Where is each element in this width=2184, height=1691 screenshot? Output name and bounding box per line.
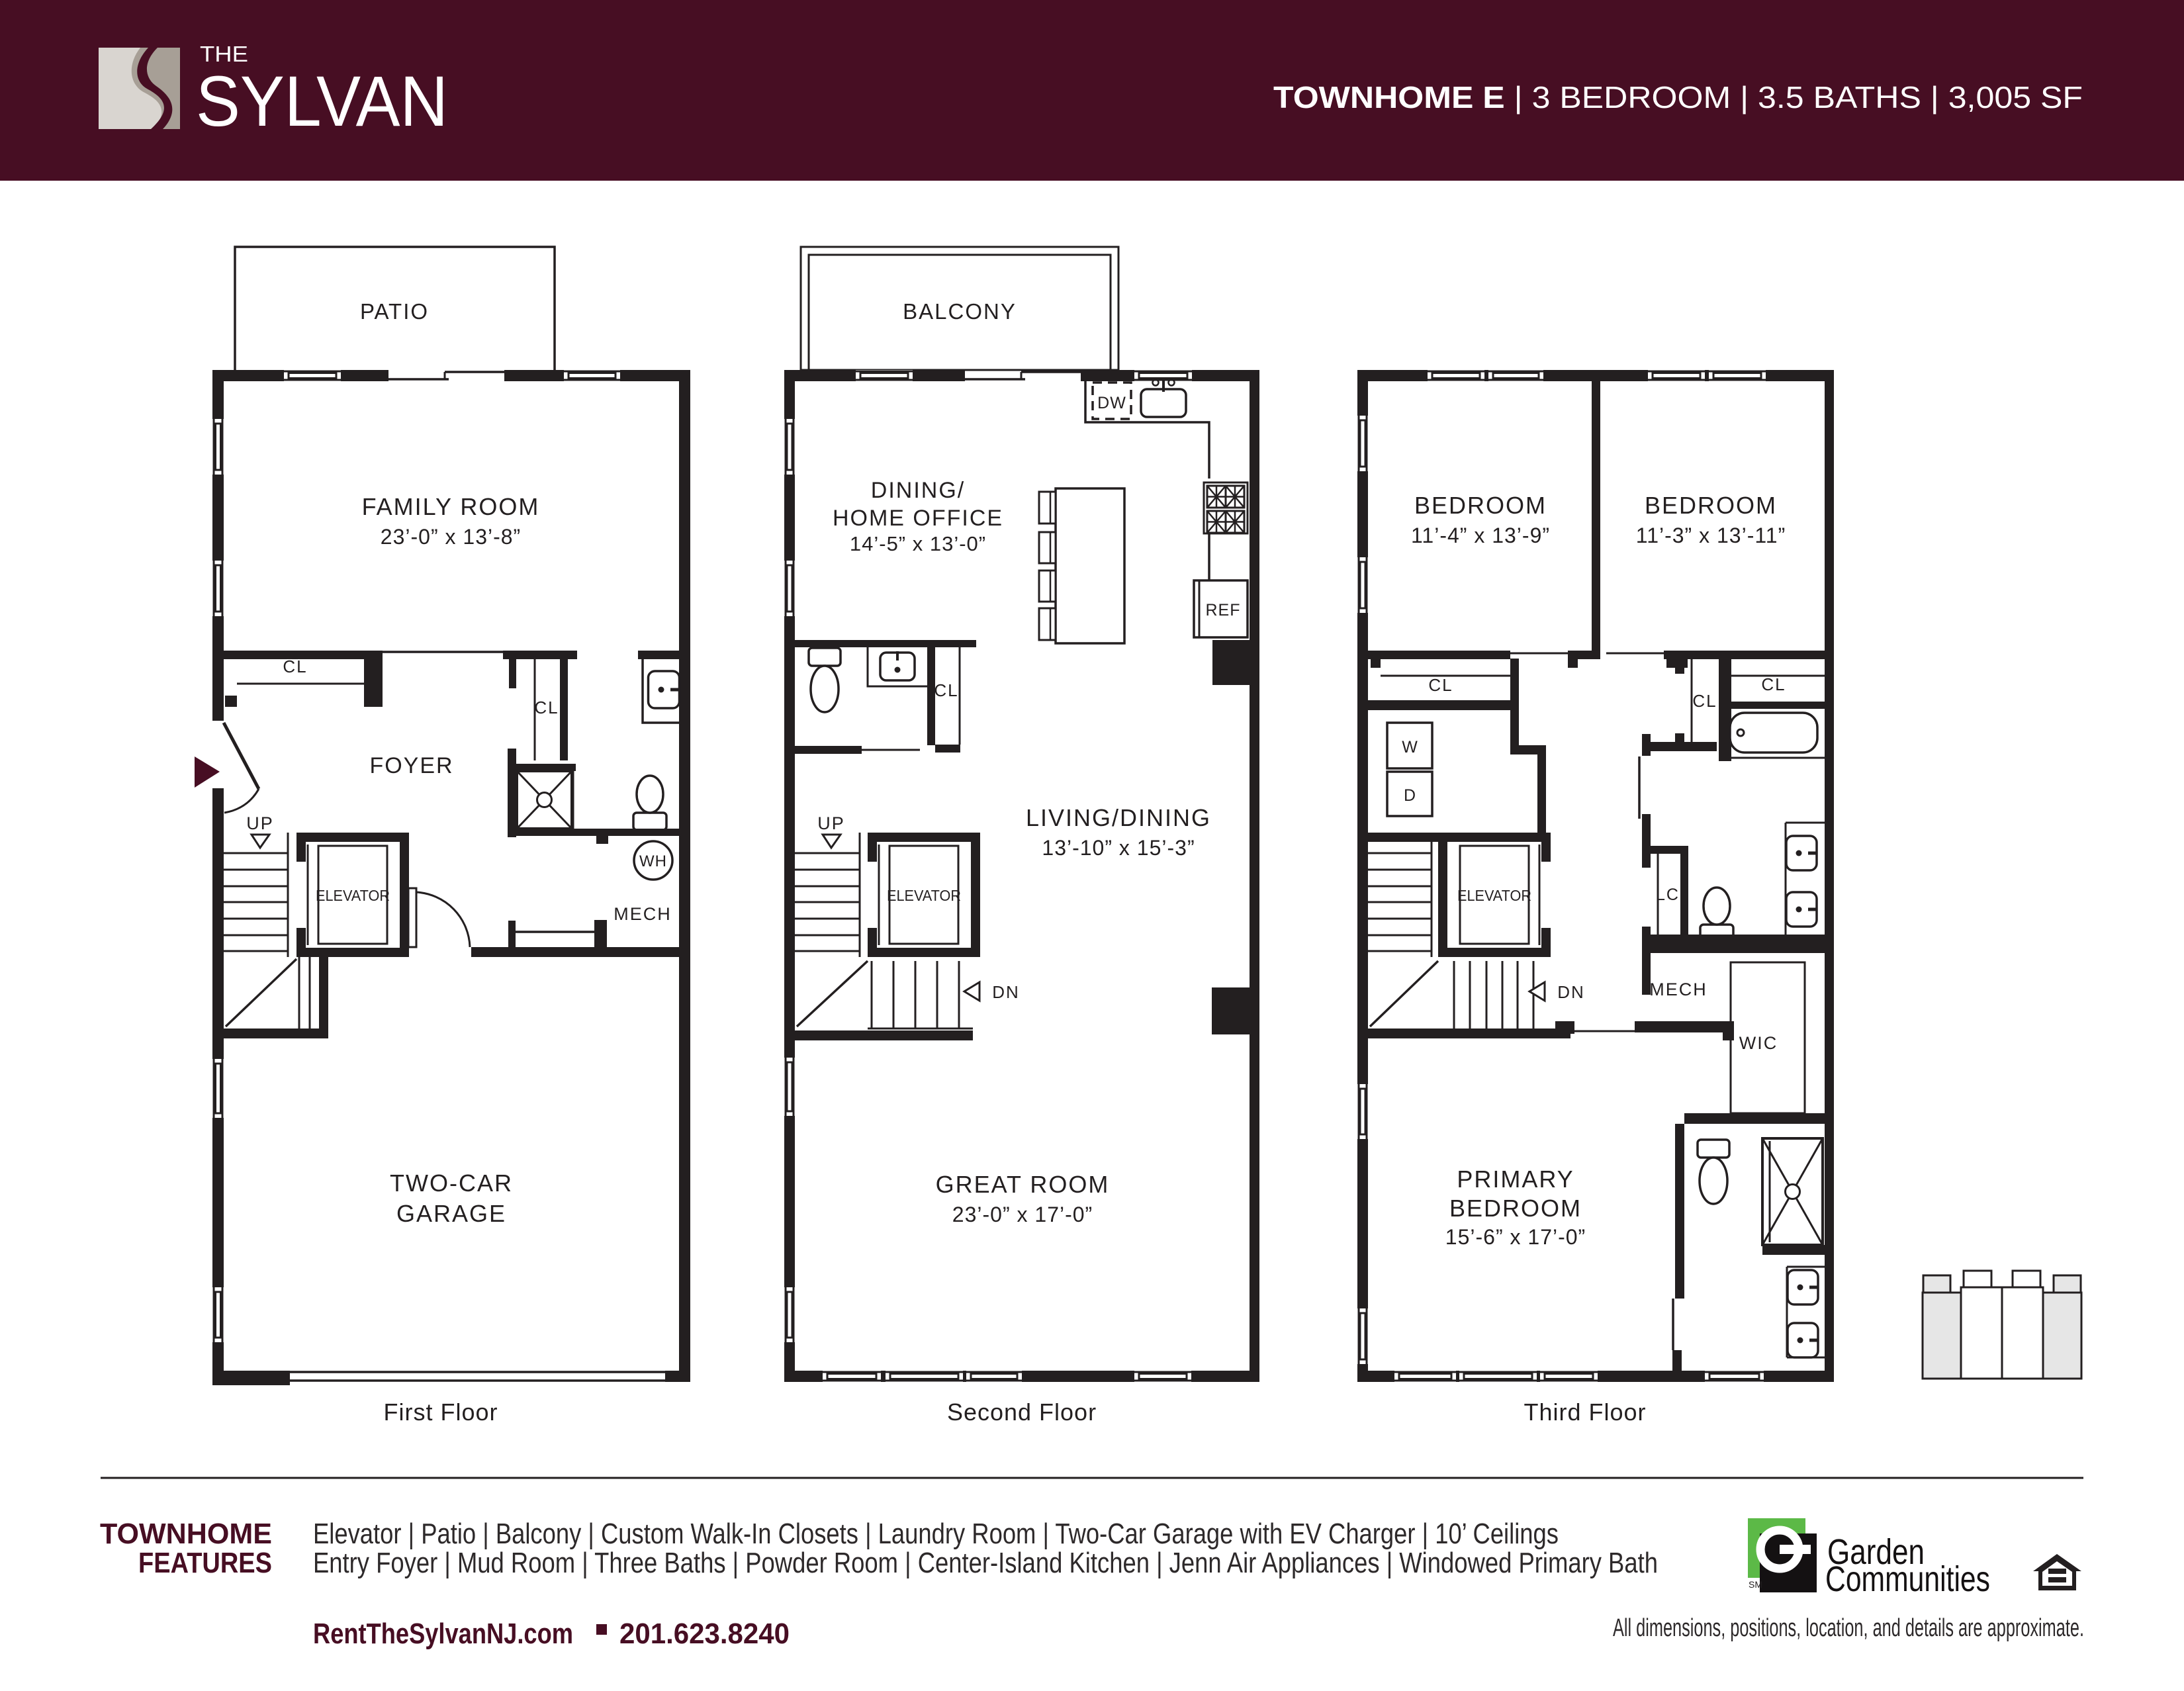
svg-text:23’-0” x 17’-0”: 23’-0” x 17’-0” (952, 1203, 1093, 1226)
svg-text:11’-3” x 13’-11”: 11’-3” x 13’-11” (1636, 524, 1786, 547)
svg-text:WH: WH (639, 852, 667, 870)
svg-text:BEDROOM: BEDROOM (1645, 492, 1777, 519)
svg-text:ELEVATOR: ELEVATOR (887, 887, 961, 904)
svg-text:TOWNHOME E | 3 BEDROOM | 3.5 B: TOWNHOME E | 3 BEDROOM | 3.5 BATHS | 3,0… (1273, 80, 2083, 114)
svg-text:TWO-CAR: TWO-CAR (390, 1169, 513, 1197)
svg-text:CL: CL (1761, 674, 1786, 694)
svg-text:WIC: WIC (1739, 1033, 1778, 1053)
svg-text:23’-0” x 13’-8”: 23’-0” x 13’-8” (381, 525, 521, 549)
svg-text:PRIMARY: PRIMARY (1457, 1165, 1574, 1193)
svg-text:CL: CL (283, 657, 307, 676)
svg-text:15’-6” x 17’-0”: 15’-6” x 17’-0” (1445, 1225, 1586, 1249)
svg-text:UP: UP (246, 813, 274, 833)
svg-text:CL: CL (1428, 675, 1453, 695)
svg-text:HOME OFFICE: HOME OFFICE (833, 506, 1003, 531)
svg-text:Second Floor: Second Floor (947, 1398, 1097, 1426)
svg-text:LIVING/DINING: LIVING/DINING (1026, 804, 1211, 831)
svg-text:First Floor: First Floor (384, 1398, 498, 1426)
svg-text:REF: REF (1206, 601, 1241, 619)
svg-text:TOWNHOME: TOWNHOME (100, 1518, 272, 1550)
svg-text:ELEVATOR: ELEVATOR (1457, 887, 1531, 904)
svg-text:FOYER: FOYER (369, 753, 453, 778)
svg-text:GREAT ROOM: GREAT ROOM (936, 1171, 1110, 1198)
svg-text:CL: CL (534, 698, 559, 717)
svg-text:BALCONY: BALCONY (903, 299, 1017, 324)
svg-text:UP: UP (817, 813, 845, 833)
svg-text:SYLVAN: SYLVAN (196, 61, 448, 141)
svg-text:MECH: MECH (1649, 980, 1707, 999)
svg-text:Third Floor: Third Floor (1524, 1398, 1646, 1426)
svg-text:RentTheSylvanNJ.com: RentTheSylvanNJ.com (313, 1618, 573, 1650)
svg-text:13’-10” x 15’-3”: 13’-10” x 15’-3” (1042, 836, 1195, 860)
svg-text:DINING/: DINING/ (871, 478, 965, 503)
svg-text:D: D (1404, 786, 1416, 805)
svg-text:DN: DN (992, 982, 1020, 1002)
svg-text:CL: CL (934, 680, 958, 700)
svg-text:BEDROOM: BEDROOM (1449, 1195, 1582, 1222)
svg-text:FAMILY ROOM: FAMILY ROOM (362, 493, 540, 520)
svg-text:LC: LC (1656, 886, 1680, 904)
svg-text:DW: DW (1097, 394, 1126, 412)
svg-text:GARAGE: GARAGE (396, 1200, 506, 1227)
svg-text:BEDROOM: BEDROOM (1414, 492, 1547, 519)
svg-text:PATIO: PATIO (360, 299, 429, 324)
svg-text:DN: DN (1557, 982, 1585, 1002)
svg-text:CL: CL (1692, 691, 1717, 711)
svg-text:All dimensions, positions, loc: All dimensions, positions, location, and… (1613, 1614, 2084, 1642)
svg-text:MECH: MECH (614, 904, 672, 924)
svg-text:W: W (1402, 738, 1418, 756)
svg-text:SM: SM (1749, 1579, 1762, 1590)
svg-text:FEATURES: FEATURES (138, 1547, 272, 1579)
svg-text:201.623.8240: 201.623.8240 (619, 1618, 790, 1650)
svg-text:Communities: Communities (1825, 1559, 1990, 1599)
svg-text:Elevator | Patio | Balcony | C: Elevator | Patio | Balcony | Custom Walk… (313, 1518, 1559, 1550)
svg-text:14’-5” x 13’-0”: 14’-5” x 13’-0” (850, 532, 986, 555)
svg-text:Entry Foyer | Mud Room | Three: Entry Foyer | Mud Room | Three Baths | P… (313, 1547, 1658, 1579)
svg-text:11’-4” x 13’-9”: 11’-4” x 13’-9” (1411, 524, 1550, 547)
svg-text:ELEVATOR: ELEVATOR (316, 887, 390, 904)
